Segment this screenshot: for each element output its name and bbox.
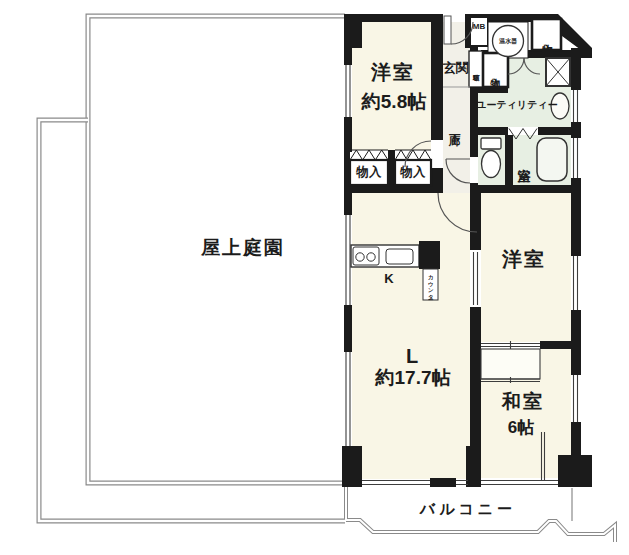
window-living-left-1 [346,215,350,305]
window-right-west2 [574,256,578,310]
wall-below-wet-rooms [470,185,581,193]
label-water-heater: 温水器 [499,38,517,44]
closet-hatch-right [395,150,431,160]
room-living-floor [352,193,470,479]
garden-outer-border-gap [39,120,345,521]
closet-body [481,349,540,379]
label-roof-garden: 屋上庭園 [201,238,285,257]
closet-hatch-left [350,150,388,160]
wall-corner-block-br [558,455,592,487]
label-japanese-room-size: 6帖 [508,419,534,436]
wall-divider-post [466,446,481,487]
label-kitchen: K [384,272,393,285]
roof-garden-outline [39,16,345,521]
wall-corner-post-bl [342,446,362,487]
window-living-bottom [362,481,430,485]
label-closet-left: 物入 [357,166,382,179]
wall-corridor-left-lower [431,168,443,193]
wall-toilet-bath-divider [505,135,513,185]
wall-right-4 [571,310,581,375]
wall-left-post3 [344,305,352,352]
window-japanese-bottom [481,481,558,485]
label-closet-right: 物入 [401,166,426,179]
label-entrance: 玄関 [443,61,469,74]
wall-corner-post-tl [344,14,362,48]
entrance-door-leaf [444,16,451,44]
room-western1-floor [352,22,431,150]
storage-top-right-box [532,19,561,50]
floorplan-page: 屋上庭園 洋室 約5.8帖 玄関 MB 温水器 物入 下駄箱 物入 ユーティリテ… [0,0,629,555]
toilet-tank-icon [481,138,501,149]
label-japanese-room-name: 和室 [502,392,544,411]
wall-utility-bath-left [478,127,508,135]
window-right-bath [574,138,578,178]
label-living-size: 約17.7帖 [376,368,451,387]
label-living-name: L [406,346,418,366]
label-meter-box: MB [473,23,485,31]
wall-closet2-right [540,341,571,349]
window-living-left-2 [346,352,350,446]
toilet-bowl-icon [482,151,501,178]
storage-hall-box [483,53,508,87]
shoe-cabinet-box [469,51,483,87]
window-right-japanese [574,375,578,422]
wall-divider-upper [470,193,481,250]
label-balcony: バルコニー [420,501,516,516]
garden-outer-border [39,120,345,521]
japanese-closet [481,341,540,383]
wall-right-2 [571,122,581,138]
kitchen-wall-block [419,241,440,269]
wall-right-5 [571,422,581,457]
wall-closet-bottom [344,185,443,193]
wall-left-post1 [344,117,352,152]
wall-corridor-left-upper [431,22,443,140]
floorplan-drawing [0,0,629,555]
wall-right-1 [571,48,581,90]
bathtub-icon [537,138,567,181]
label-counter: カウンター [428,271,434,296]
wall-divider-lower [470,307,481,446]
label-western-room1-size: 約5.8帖 [362,92,426,111]
sliding-door-top [481,341,540,349]
label-western-room1-name: 洋室 [371,62,415,82]
window-west1-left [346,65,350,117]
wall-left-seg1 [344,48,352,65]
wall-left-post2 [344,186,352,215]
window-right-utility [574,90,578,122]
sliding-opening-west2 [474,252,478,305]
wall-bottom-seg [430,478,456,487]
label-western-room2-name: 洋室 [502,249,546,269]
label-utility: ユーティリティー [476,100,557,110]
wall-utility-bath-right [538,127,571,135]
